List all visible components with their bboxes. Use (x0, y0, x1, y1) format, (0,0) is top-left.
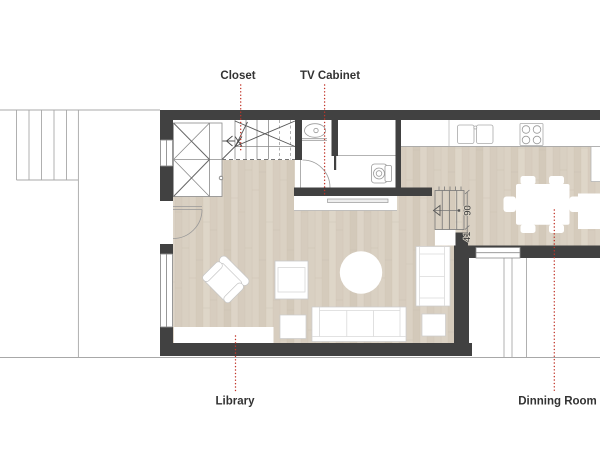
svg-text:Dinning Room: Dinning Room (518, 396, 597, 408)
svg-text:Library: Library (216, 396, 256, 408)
svg-text:90: 90 (462, 205, 473, 216)
svg-text:TV Cabinet: TV Cabinet (300, 70, 360, 82)
svg-text:Closet: Closet (220, 70, 255, 82)
svg-text:41: 41 (462, 232, 473, 243)
